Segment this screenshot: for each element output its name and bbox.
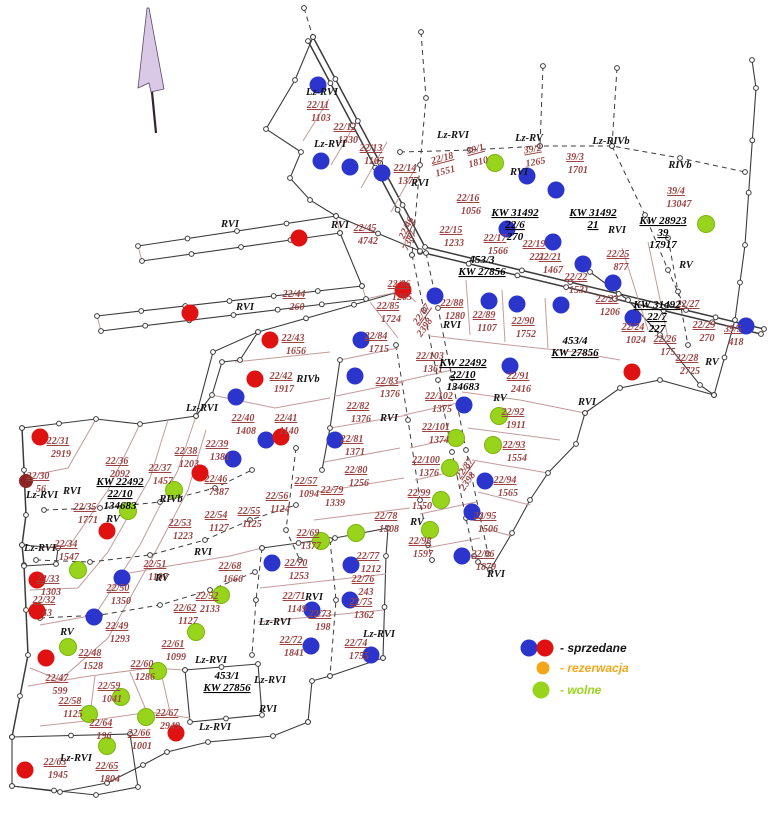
dot-sold-red [291, 230, 308, 247]
survey-point [188, 720, 193, 725]
survey-point [94, 417, 99, 422]
parcel-area-label: 1256 [349, 478, 369, 489]
survey-point [253, 570, 258, 575]
parcel-number-label: 39/3 [565, 152, 584, 163]
soil-class-label: Lz-RVI [305, 87, 339, 98]
parcel-area-label: 1041 [102, 694, 122, 705]
survey-point [227, 299, 232, 304]
parcel-number-label: 22/95 [473, 511, 497, 522]
survey-point [143, 323, 148, 328]
survey-point [260, 546, 265, 551]
soil-class-label: Lz-RVI [198, 722, 232, 733]
dot-sold-blue [86, 609, 103, 626]
survey-point [746, 190, 751, 195]
parcel-area-label: 1408 [236, 426, 256, 437]
survey-point [20, 426, 25, 431]
parcel-number-label: 22/54 [204, 510, 228, 521]
parcel-area-label: 1752 [516, 329, 536, 340]
dot-sold-blue [313, 153, 330, 170]
parcel-number-label: 22/29 [692, 320, 716, 331]
parcel-number-label: 22/100 [411, 455, 440, 466]
survey-point [271, 734, 276, 739]
survey-point [299, 150, 304, 155]
parcel-area-label: 4742 [357, 236, 378, 247]
survey-point [381, 656, 386, 661]
survey-point [239, 245, 244, 250]
boundary-line [308, 658, 383, 722]
survey-point [418, 249, 423, 254]
parcel-area-label: 1350 [111, 596, 131, 607]
parcel-area-label: 1506 [478, 524, 498, 535]
dot-sold-blue [575, 256, 592, 273]
survey-point [398, 150, 403, 155]
survey-point [194, 414, 199, 419]
parcel-number-label: 22/59 [97, 681, 121, 692]
parcel-number-label: 22/80 [344, 465, 368, 476]
dot-sold-blue [258, 432, 275, 449]
boundary-line [585, 380, 714, 413]
parcel-number-label: 22/91 [506, 371, 530, 382]
parcel-number-label: 39/5 [723, 324, 742, 335]
survey-point [394, 343, 399, 348]
kw-register-label: 453/4 [561, 335, 588, 347]
survey-point [275, 307, 280, 312]
dot-free-green [60, 639, 77, 656]
parcel-area-label: 1253 [289, 571, 309, 582]
parcel-number-label: 22/96 [471, 549, 495, 560]
parcel-area-label: 1810 [467, 155, 489, 171]
survey-point [148, 553, 153, 558]
soil-class-label: Lz-RVI [185, 403, 219, 414]
parcel-area-label: 1127 [209, 523, 229, 534]
parcel-number-label: 22/41 [274, 413, 298, 424]
soil-class-label: RVI [235, 302, 255, 313]
parcel-area-label: 1286 [135, 672, 155, 683]
survey-point [42, 508, 47, 513]
parcel-number-label: 22/67 [155, 708, 180, 719]
survey-point [294, 446, 299, 451]
parcel-area-label: 1107 [477, 323, 497, 334]
parcel-area-label: 2725 [679, 366, 700, 377]
parcel-number-label: 22/42 [269, 371, 293, 382]
legend-label: - wolne [560, 683, 602, 697]
survey-point [743, 170, 748, 175]
boundary-lines [12, 8, 764, 795]
parcel-area-label: 1804 [100, 774, 120, 785]
survey-point [382, 605, 387, 610]
legend [521, 640, 554, 699]
parcel-area-label: 1554 [507, 453, 527, 464]
soil-class-label: Lz-RVI [436, 130, 470, 141]
kw-register-label: 134683 [104, 500, 138, 512]
dot-sold-red [262, 332, 279, 349]
parcel-area-label: 13047 [667, 199, 693, 210]
survey-point [311, 35, 316, 40]
parcel-number-label: 22/47 [45, 673, 70, 684]
survey-point [762, 327, 767, 332]
survey-point [423, 245, 428, 250]
parcel-area-label: 1024 [626, 335, 646, 346]
parcel-area-label: 175 [661, 347, 676, 358]
survey-point [69, 733, 74, 738]
parcel-number-label: 22/61 [161, 639, 185, 650]
parcel-area-label: 1945 [48, 770, 68, 781]
parcel-area-label: 1467 [543, 265, 564, 276]
parcel-number-label: 22/16 [456, 193, 480, 204]
survey-point [626, 298, 631, 303]
survey-point [293, 78, 298, 83]
survey-point [22, 564, 27, 569]
survey-point [615, 66, 620, 71]
parcel-number-label: 22/40 [231, 413, 255, 424]
dot-sold-blue [228, 389, 245, 406]
soil-class-label: RVI [330, 220, 350, 231]
parcel-area-label: 1303 [41, 587, 61, 598]
parcel-area-label: 1339 [325, 498, 345, 509]
parcel-area-label: 1203 [179, 459, 199, 470]
legend-label: - rezerwacja [560, 661, 629, 675]
parcel-number-label: 22/86 [387, 279, 411, 290]
parcel-area-label: 1755 [349, 651, 369, 662]
dot-sold-red [99, 523, 116, 540]
parcel-area-label: 270 [699, 333, 715, 344]
parcel-number-label: 22/39 [205, 439, 229, 450]
parcel-area-label: 1265 [392, 292, 412, 303]
soil-class-label: RVI [442, 320, 462, 331]
survey-point [395, 207, 400, 212]
survey-point [686, 343, 691, 348]
survey-point [189, 252, 194, 257]
parcel-area-label: 1212 [361, 564, 381, 575]
parcel-number-label: 22/101 [421, 422, 450, 433]
survey-point [574, 442, 579, 447]
survey-point [418, 163, 423, 168]
kw-register-label: 21 [587, 219, 599, 231]
survey-point [98, 506, 103, 511]
parcel-area-label: 1140 [279, 426, 298, 437]
survey-point [165, 750, 170, 755]
survey-point [99, 329, 104, 334]
parcel-number-label: 22/66 [127, 728, 151, 739]
survey-point [759, 332, 764, 337]
parcel-number-label: 22/23 [595, 294, 619, 305]
parcel-area-label: 1771 [78, 515, 98, 526]
soil-class-label: RVI [607, 225, 627, 236]
parcel-area-label: 1362 [354, 610, 374, 621]
survey-point [750, 138, 755, 143]
survey-point [320, 468, 325, 473]
parcel-number-label: 22/26 [653, 334, 677, 345]
dot-sold-blue [605, 275, 622, 292]
boundary-line [612, 68, 617, 146]
parcel-area-label: 1099 [166, 652, 186, 663]
survey-point [384, 554, 389, 559]
survey-point [564, 285, 569, 290]
dot-sold-blue [303, 638, 320, 655]
survey-point [26, 653, 31, 658]
parcel-area-label: 2919 [50, 449, 71, 460]
parcel-number-label: 22/78 [374, 511, 398, 522]
survey-point [328, 81, 333, 86]
survey-point [618, 386, 623, 391]
parcel-number-label: 22/44 [282, 289, 306, 300]
survey-point [319, 302, 324, 307]
kw-register-label: 453/3 [468, 254, 495, 266]
survey-point [141, 763, 146, 768]
parcel-number-label: 22/17 [483, 233, 508, 244]
parcel-number-label: 22/79 [320, 485, 344, 496]
parcel-number-label: 22/58 [58, 696, 82, 707]
boundary-line [330, 540, 336, 676]
parcel-number-label: 22/72 [279, 635, 303, 646]
survey-point [256, 330, 261, 335]
parcel-area-label: 1547 [59, 552, 80, 563]
boundary-line [304, 8, 313, 37]
soil-class-label: Lz-RVI [253, 675, 287, 686]
dot-sold-blue [264, 555, 281, 572]
soil-class-label: Lz-RV [514, 133, 544, 144]
parcel-area-label: 1103 [311, 113, 330, 124]
parcel-area-label: 1531 [569, 285, 589, 296]
survey-point [338, 358, 343, 363]
parcel-area-label: 1841 [284, 648, 304, 659]
parcel-number-label: 22/99 [407, 488, 431, 499]
boundary-line [235, 352, 330, 362]
parcel-area-label: 1597 [413, 549, 434, 560]
survey-point [676, 289, 681, 294]
survey-point [158, 603, 163, 608]
survey-point [95, 314, 100, 319]
survey-point [185, 236, 190, 241]
parcel-area-label: 2133 [199, 604, 220, 615]
survey-point [203, 538, 208, 543]
parcel-number-label: 22/28 [675, 353, 699, 364]
survey-point [271, 294, 276, 299]
legend-dot [537, 640, 554, 657]
parcel-number-label: 22/51 [143, 559, 167, 570]
parcel-number-label: 22/11 [306, 100, 329, 111]
parcel-area-label: 1094 [299, 489, 319, 500]
parcel-area-label: 1167 [364, 156, 384, 167]
parcel-area-label: 1528 [83, 661, 103, 672]
parcel-area-label: 1911 [506, 420, 525, 431]
soil-class-label: Lz-RVI [258, 617, 292, 628]
survey-point [515, 273, 520, 278]
soil-class-label: RVI [220, 219, 240, 230]
parcel-area-label: 243 [358, 587, 374, 598]
dot-sold-blue [454, 548, 471, 565]
survey-point [264, 127, 269, 132]
parcel-area-label: 1375 [432, 404, 452, 415]
legend-label: - sprzedane [560, 641, 627, 655]
dot-free-green [348, 525, 365, 542]
soil-class-label: RVI [258, 704, 278, 715]
survey-point [206, 740, 211, 745]
survey-point [722, 355, 727, 360]
parcel-area-label: 43 [41, 608, 52, 619]
parcel-number-label: 22/49 [105, 621, 129, 632]
parcel-area-label: 2949 [159, 721, 180, 732]
parcel-number-label: 22/88 [440, 298, 464, 309]
parcel-area-label: 1917 [274, 384, 295, 395]
parcel-number-label: 22/25 [606, 249, 630, 260]
parcel-number-label: 22/82 [346, 401, 370, 412]
soil-class-label: RVI [193, 547, 213, 558]
parcel-area-label: 1293 [110, 634, 130, 645]
parcel-number-label: 22/43 [281, 333, 305, 344]
parcel-number-label: 22/52 [195, 591, 219, 602]
survey-point [138, 422, 143, 427]
survey-point [24, 513, 29, 518]
parcel-number-label: 22/48 [78, 648, 102, 659]
survey-point [583, 411, 588, 416]
soil-class-label: Lz-RVI [59, 753, 93, 764]
dot-sold-red [182, 305, 199, 322]
kw-register-label: 17917 [649, 239, 677, 251]
survey-point [18, 694, 23, 699]
parcel-number-label: 22/31 [46, 436, 70, 447]
survey-point [546, 471, 551, 476]
parcel-number-label: 22/89 [472, 310, 496, 321]
parcel-area-label: 1233 [444, 238, 464, 249]
survey-point [419, 30, 424, 35]
parcel-number-label: 22/45 [353, 223, 377, 234]
survey-point [360, 284, 365, 289]
soil-class-label: Lz-RIVb [591, 136, 629, 147]
parcel-number-label: 22/22 [564, 272, 588, 283]
survey-point [250, 468, 255, 473]
parcel-area-label: 1371 [345, 447, 365, 458]
soil-class-label: RV [678, 260, 694, 271]
survey-point [666, 268, 671, 273]
survey-point [333, 536, 338, 541]
survey-point [57, 421, 62, 426]
status-dots [17, 77, 755, 779]
survey-point [139, 309, 144, 314]
parcel-number-label: 39/4 [666, 186, 685, 197]
kw-register-label: 22/10 [106, 488, 133, 500]
survey-point [424, 251, 429, 256]
parcel-area-label: 1376 [351, 414, 371, 425]
parcel-area-label: 1377 [301, 541, 322, 552]
survey-point [250, 653, 255, 658]
soil-class-label: RIVb [158, 494, 182, 505]
survey-point [210, 393, 215, 398]
parcel-area-label: 1127 [178, 616, 198, 627]
dot-sold-red [247, 371, 264, 388]
kw-register-label: KW 22492 [438, 357, 487, 369]
parcel-area-label: 260 [289, 302, 305, 313]
survey-point [424, 96, 429, 101]
survey-point [658, 378, 663, 383]
parcel-number-label: 22/94 [493, 475, 517, 486]
survey-point [58, 790, 63, 795]
dot-sold-blue [509, 296, 526, 313]
parcel-area-label: 1308 [379, 524, 399, 535]
survey-point [288, 176, 293, 181]
parcel-area-label: 1265 [525, 155, 547, 169]
parcel-area-label: 1374 [429, 435, 449, 446]
survey-point [284, 528, 289, 533]
parcel-number-label: 22/24 [621, 322, 645, 333]
survey-point [436, 378, 441, 383]
soil-class-label: Lz-RVI [25, 490, 59, 501]
boundary-line [313, 37, 764, 329]
soil-class-label: RVI [379, 413, 399, 424]
kw-register-label: KW 27856 [202, 682, 251, 694]
survey-point [743, 243, 748, 248]
legend-dot [537, 662, 550, 675]
survey-point [364, 297, 369, 302]
parcel-number-label: 22/38 [174, 446, 198, 457]
parcel-number-label: 22/62 [173, 603, 197, 614]
parcel-number-label: 22/69 [296, 528, 320, 539]
survey-point [136, 785, 141, 790]
parcel-area-label: 1666 [223, 574, 243, 585]
soil-class-label: Lz-RVI [23, 543, 57, 554]
parcel-number-label: 22/92 [501, 407, 525, 418]
parcel-area-label: 2416 [510, 384, 531, 395]
survey-point [306, 720, 311, 725]
survey-point [238, 358, 243, 363]
survey-point [450, 450, 455, 455]
survey-point [220, 360, 225, 365]
kw-register-label: 270 [506, 231, 524, 243]
survey-point [54, 562, 59, 567]
dot-sold-blue [477, 473, 494, 490]
dot-sold-blue [481, 293, 498, 310]
kw-register-label: 22/6 [504, 219, 525, 231]
dot-sold-blue [374, 165, 391, 182]
parcel-number-label: 22/13 [359, 143, 383, 154]
survey-point [315, 289, 320, 294]
parcel-area-label: 1376 [419, 468, 439, 479]
parcel-area-label: 196 [97, 731, 112, 742]
parcel-number-label: 22/98 [408, 536, 432, 547]
survey-points [10, 6, 767, 798]
parcel-area-label: 198 [316, 622, 331, 633]
survey-point [333, 77, 338, 82]
parcel-area-label: 7387 [209, 487, 230, 498]
soil-class-label: RIVb [295, 374, 319, 385]
dot-free-green [448, 430, 465, 447]
soil-class-label: RIVb [667, 160, 691, 171]
parcel-number-label: 22/21 [538, 252, 562, 263]
soil-class-label: RVI [410, 178, 430, 189]
dot-free-green [138, 709, 155, 726]
kw-register-label: 134683 [447, 381, 481, 393]
parcel-number-label: 22/81 [340, 434, 364, 445]
parcel-area-label: 1056 [461, 206, 481, 217]
parcel-number-label: 22/36 [105, 456, 129, 467]
survey-point [338, 231, 343, 236]
survey-point [302, 6, 307, 11]
survey-point [520, 268, 525, 273]
kw-register-label: KW 27856 [550, 347, 599, 359]
kw-register-label: KW 31492 [632, 299, 681, 311]
legend-dot [521, 640, 538, 657]
survey-point [88, 560, 93, 565]
parcel-number-label: 22/90 [511, 316, 535, 327]
survey-point [510, 531, 515, 536]
kw-register-label: 22/7 [646, 311, 667, 323]
dot-sold-blue [553, 297, 570, 314]
parcel-area-label: 1457 [153, 476, 174, 487]
parcel-area-label: 1715 [369, 344, 389, 355]
parcel-area-label: 1565 [498, 488, 518, 499]
soil-class-label: RV [105, 514, 121, 525]
cadastral-map-scan: 22/11110322/12133022/13116722/14137722/1… [0, 0, 768, 814]
